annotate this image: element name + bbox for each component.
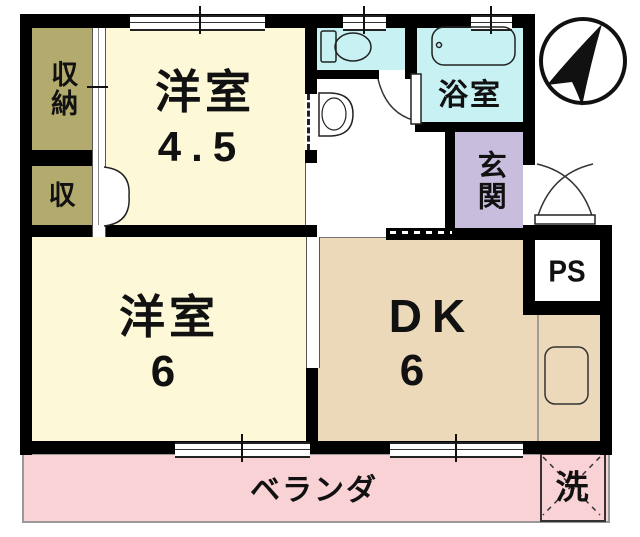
laundry-label: 洗 [556, 471, 589, 504]
floor-plan: 収納 収 洋室 4.5 洋室 6 DK 6 浴室 玄関 PS ベランダ 洗 [0, 0, 640, 537]
wall-bottom [20, 441, 612, 454]
window-sash-line [343, 22, 386, 23]
compass-north-icon [541, 19, 625, 106]
wall-right-upper [523, 14, 535, 165]
wall-right-lower [600, 225, 612, 455]
room45-hall-dashed-opening [305, 94, 317, 150]
closet-door-gap [92, 225, 106, 237]
entrance-door-arc-icon [537, 164, 593, 219]
wall-closet-divider [32, 150, 92, 166]
window-sash-line [390, 449, 523, 450]
wall-toilet-bath-divider [405, 14, 417, 79]
window-sash-line [130, 22, 265, 23]
wall-room45-right-top [305, 14, 317, 94]
entrance-door-arc2-icon [537, 164, 593, 219]
dashed-partition-line [307, 94, 310, 150]
wall-below-bathroom [415, 122, 535, 132]
bathroom-label: 浴室 [438, 81, 502, 111]
western-room-4-5-name: 洋室 [155, 69, 255, 115]
wall-entrance-left [445, 132, 455, 233]
closet-sliding-door [92, 28, 106, 225]
western-room-4-5-size: 4.5 [158, 126, 246, 168]
sliding-door-centerline [98, 28, 99, 225]
wall-ps-top [523, 225, 612, 240]
western-room-6-size: 6 [151, 350, 175, 394]
washbasin-icon [319, 93, 353, 136]
wall-below-closets [20, 225, 317, 237]
window-top-bathroom [471, 15, 512, 31]
closet-sub-label: 収 [49, 183, 76, 210]
wall-room45-right-mid [305, 150, 317, 163]
room6-dk-opening [306, 237, 320, 368]
wall-entrance-bottom [386, 228, 535, 240]
window-bottom-dk [390, 442, 523, 458]
dk-name: DK [389, 293, 475, 339]
room45-hall-opening [305, 163, 318, 227]
window-sash-line [175, 449, 310, 450]
wall-room6-dk-lower [306, 368, 318, 441]
window-bottom-room6 [175, 442, 310, 458]
sliding-track-dashes [390, 231, 452, 234]
veranda-label: ベランダ [250, 476, 378, 506]
window-sash-line [471, 22, 512, 23]
western-room-6-name: 洋室 [119, 294, 219, 340]
entrance-label: 玄関 [474, 150, 504, 212]
wall-top [20, 14, 535, 28]
window-top-room45 [130, 15, 265, 31]
wall-below-toilet [305, 70, 379, 79]
pipe-space-label: PS [548, 256, 585, 287]
closet-main-label: 収納 [48, 60, 76, 118]
wall-ps-bottom [523, 301, 612, 315]
toilet-door-arc-icon [378, 79, 413, 120]
window-top-toilet [343, 15, 386, 31]
entrance-door-leaf-icon [535, 215, 595, 224]
dk-size: 6 [400, 349, 424, 393]
